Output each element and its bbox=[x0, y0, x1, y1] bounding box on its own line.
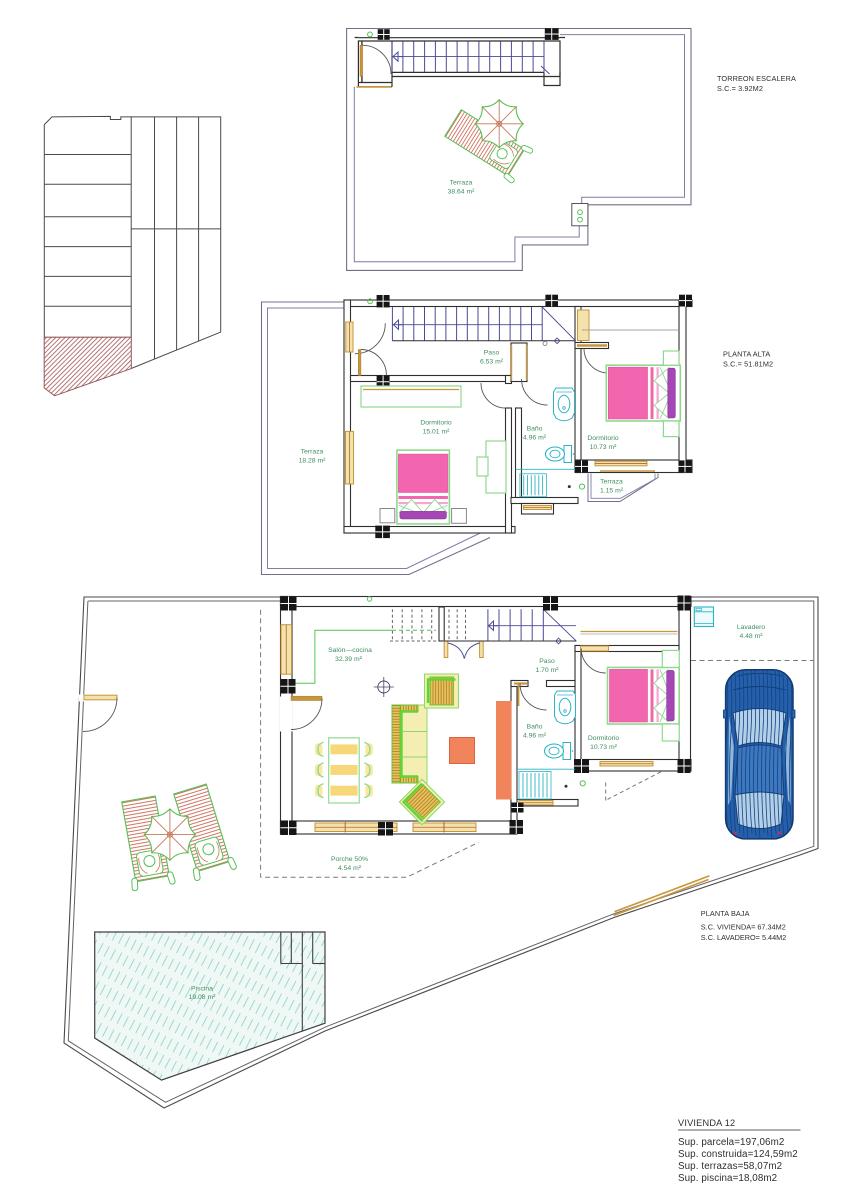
svg-text:6.53 m²: 6.53 m² bbox=[480, 359, 504, 366]
svg-text:Dormitorio: Dormitorio bbox=[587, 435, 619, 442]
svg-text:32.39 m²: 32.39 m² bbox=[335, 656, 363, 663]
svg-text:38.64 m²: 38.64 m² bbox=[448, 189, 476, 196]
svg-text:VIVIENDA 12: VIVIENDA 12 bbox=[678, 1118, 735, 1128]
svg-text:Dormitorio: Dormitorio bbox=[588, 735, 620, 742]
svg-text:S.C.= 3.92M2: S.C.= 3.92M2 bbox=[717, 84, 763, 93]
svg-text:10.73 m²: 10.73 m² bbox=[590, 744, 618, 751]
svg-text:TORREON ESCALERA: TORREON ESCALERA bbox=[717, 74, 796, 83]
svg-text:4.48 m²: 4.48 m² bbox=[739, 633, 763, 640]
svg-text:PLANTA BAJA: PLANTA BAJA bbox=[701, 909, 750, 918]
svg-text:Terraza: Terraza bbox=[450, 180, 473, 187]
svg-text:Salón—cocina: Salón—cocina bbox=[328, 647, 372, 654]
svg-text:4.54 m²: 4.54 m² bbox=[338, 865, 362, 872]
svg-text:1.15 m²: 1.15 m² bbox=[600, 488, 624, 495]
svg-text:S.C. LAVADERO= 5.44M2: S.C. LAVADERO= 5.44M2 bbox=[701, 933, 787, 942]
svg-text:Sup. construida=124,59m2: Sup. construida=124,59m2 bbox=[678, 1149, 798, 1160]
svg-text:10.73 m²: 10.73 m² bbox=[590, 444, 618, 451]
svg-text:Porche 50%: Porche 50% bbox=[331, 856, 368, 863]
svg-text:4.96 m²: 4.96 m² bbox=[523, 733, 547, 740]
svg-text:19.08 m²: 19.08 m² bbox=[189, 994, 217, 1001]
svg-text:Paso: Paso bbox=[539, 658, 555, 665]
svg-text:Sup. parcela=197,06m2: Sup. parcela=197,06m2 bbox=[678, 1137, 784, 1148]
svg-text:Dormitorio: Dormitorio bbox=[420, 420, 452, 427]
svg-text:Sup. piscina=18,08m2: Sup. piscina=18,08m2 bbox=[678, 1173, 777, 1184]
svg-text:4.96 m²: 4.96 m² bbox=[523, 435, 547, 442]
svg-text:Baño: Baño bbox=[527, 426, 543, 433]
svg-text:Terraza: Terraza bbox=[600, 479, 623, 486]
svg-text:15.01 m²: 15.01 m² bbox=[423, 429, 451, 436]
svg-text:Piscina: Piscina bbox=[191, 986, 213, 993]
svg-text:1.70 m²: 1.70 m² bbox=[535, 667, 559, 674]
svg-text:Sup. terrazas=58,07m2: Sup. terrazas=58,07m2 bbox=[678, 1161, 782, 1172]
svg-text:Baño: Baño bbox=[527, 724, 543, 731]
svg-text:Lavadero: Lavadero bbox=[737, 624, 766, 631]
svg-text:Paso: Paso bbox=[484, 350, 500, 357]
svg-text:S.C.= 51.81M2: S.C.= 51.81M2 bbox=[723, 360, 773, 369]
svg-text:PLANTA ALTA: PLANTA ALTA bbox=[723, 350, 770, 359]
svg-text:18.28 m²: 18.28 m² bbox=[299, 458, 327, 465]
svg-text:Terraza: Terraza bbox=[301, 449, 324, 456]
svg-text:S.C. VIVIENDA= 67.34M2: S.C. VIVIENDA= 67.34M2 bbox=[701, 923, 786, 932]
